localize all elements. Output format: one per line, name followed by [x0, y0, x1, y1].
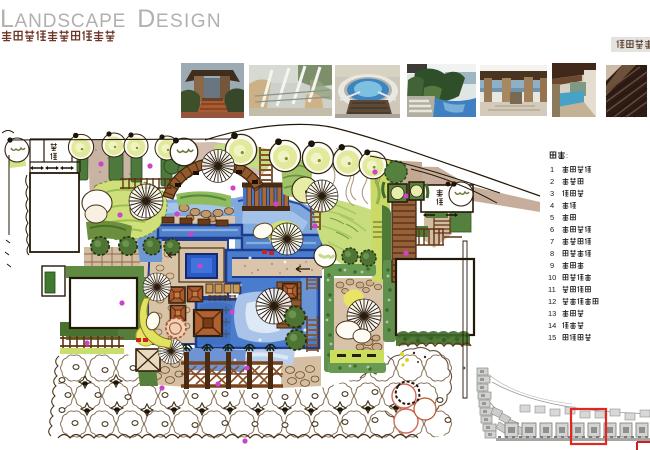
svg-text:10: 10	[548, 273, 556, 282]
svg-text:7: 7	[550, 237, 554, 246]
svg-text:14: 14	[548, 321, 556, 330]
svg-text:15: 15	[548, 333, 556, 342]
svg-text:5: 5	[550, 213, 554, 222]
svg-text:6: 6	[550, 225, 554, 234]
svg-text:9: 9	[550, 261, 554, 270]
svg-text:13: 13	[548, 309, 556, 318]
svg-text:8: 8	[550, 249, 554, 258]
svg-text:3: 3	[550, 189, 554, 198]
svg-text:2: 2	[550, 177, 554, 186]
svg-text:4: 4	[550, 201, 554, 210]
svg-text:LANDSCAPEDESIGN: LANDSCAPEDESIGN	[0, 5, 222, 33]
svg-text:11: 11	[548, 285, 556, 294]
svg-text:1: 1	[550, 165, 554, 174]
svg-text:12: 12	[548, 297, 556, 306]
svg-text::: :	[566, 153, 568, 160]
